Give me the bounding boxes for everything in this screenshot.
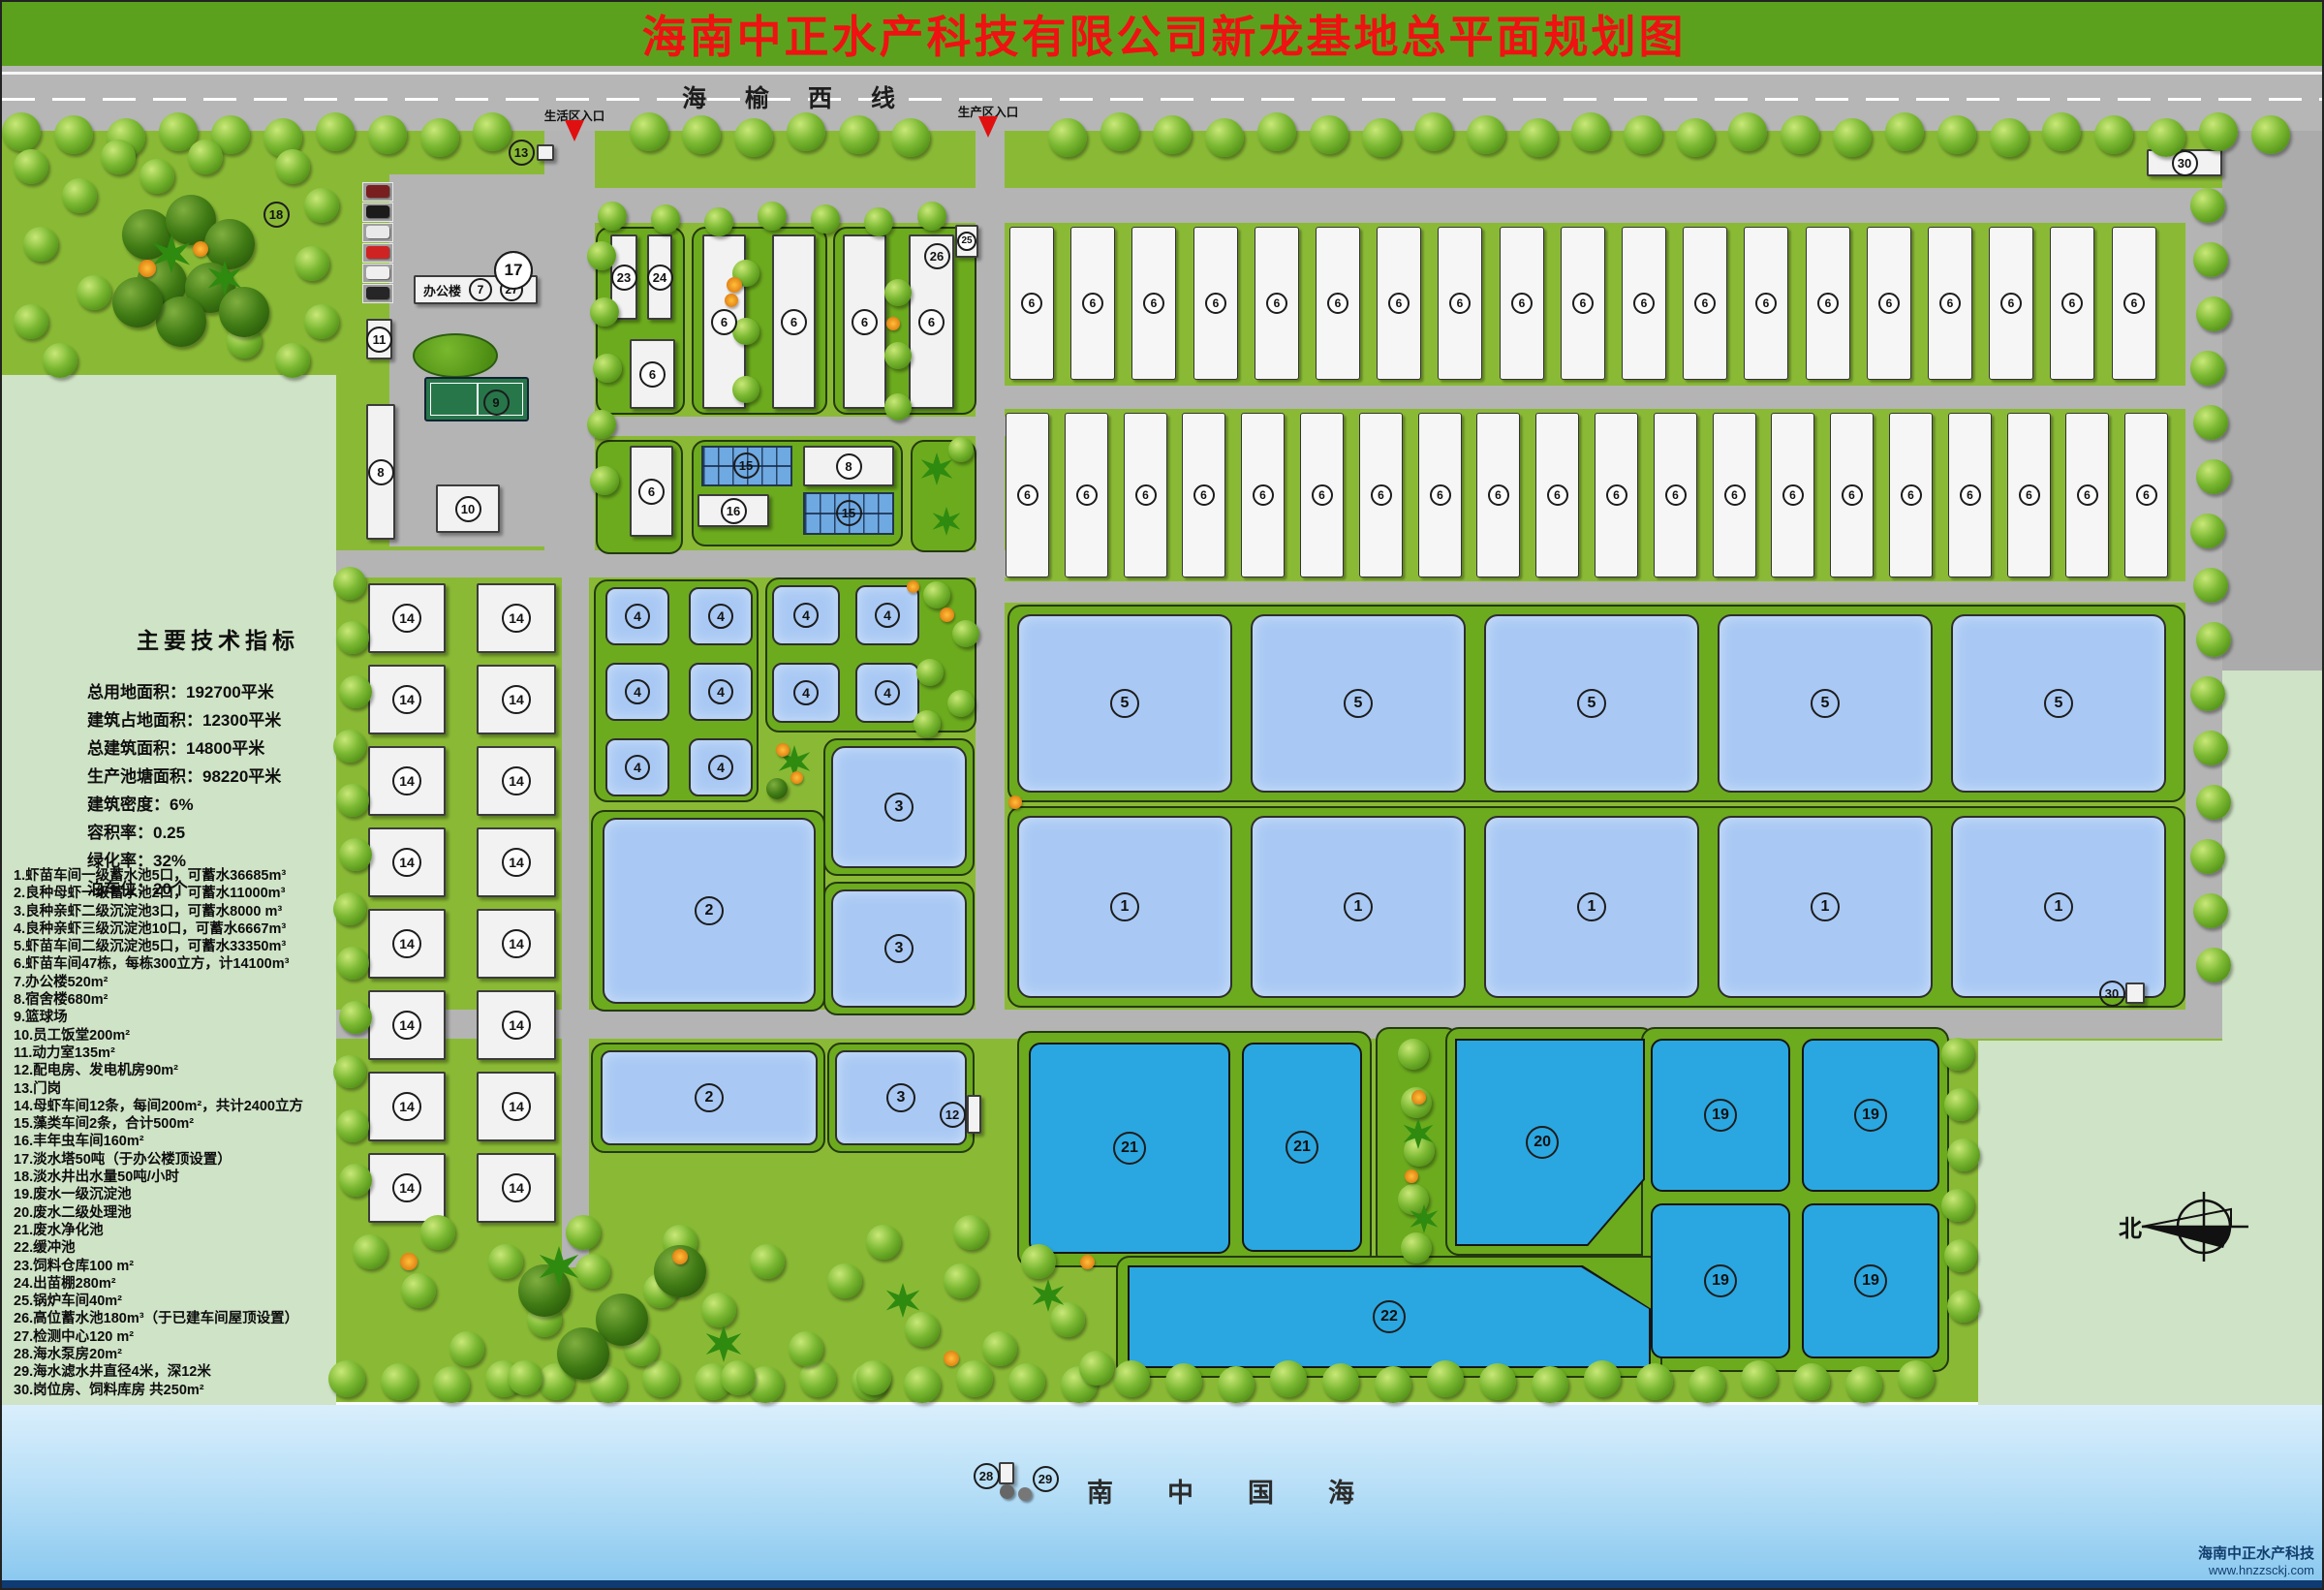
marker-6: 6: [1266, 293, 1287, 314]
tree-icon: [630, 112, 668, 151]
building: [2125, 982, 2145, 1004]
tree-icon: [2042, 112, 2081, 151]
marker-6: 6: [1021, 293, 1042, 314]
tree-icon: [891, 118, 930, 157]
flower-bush-icon: [725, 294, 738, 307]
marker-6: 6: [2000, 293, 2022, 314]
marker-14: 14: [392, 1173, 421, 1202]
marker-6: 6: [1572, 293, 1594, 314]
tree-icon: [2, 112, 41, 151]
tree-icon: [1153, 115, 1192, 154]
flower-bush-icon: [790, 771, 803, 784]
flower-bush-icon: [1405, 1169, 1418, 1183]
tree-icon: [2193, 242, 2228, 277]
tree-icon: [856, 1360, 891, 1395]
legend-item: 16.丰年虫车间160m²: [14, 1133, 335, 1150]
marker-6: 6: [1205, 293, 1226, 314]
tree-icon: [336, 621, 369, 654]
marker-6: 6: [1665, 484, 1687, 506]
tree-icon: [1519, 118, 1558, 157]
tree-icon: [1414, 112, 1453, 151]
tree-icon: [1833, 118, 1872, 157]
filter-well-icon: [1018, 1487, 1032, 1501]
tree-icon: [1937, 115, 1976, 154]
legend-item: 29.海水滤水井直径4米，深12米: [14, 1363, 335, 1381]
marker-4: 4: [793, 603, 819, 628]
tree-icon: [590, 297, 619, 327]
highway-center-line: [2, 98, 2324, 101]
tree-icon: [2094, 115, 2133, 154]
tree-icon: [917, 202, 946, 231]
marker-6: 6: [2123, 293, 2145, 314]
tree-icon: [2193, 405, 2228, 440]
marker-6: 6: [2136, 484, 2157, 506]
tree-icon: [914, 710, 941, 737]
marker-6: 6: [1449, 293, 1471, 314]
flower-bush-icon: [1080, 1255, 1095, 1269]
marker-6: 6: [1817, 293, 1839, 314]
tree-icon: [1571, 112, 1610, 151]
tree-icon: [339, 838, 372, 871]
tree-icon: [1947, 1290, 1980, 1323]
marker-6: 6: [1253, 484, 1274, 506]
tree-icon: [2193, 731, 2228, 765]
tree-icon: [1079, 1351, 1114, 1386]
tree-icon: [953, 1215, 988, 1250]
marker-14: 14: [392, 1092, 421, 1121]
marker-14: 14: [392, 1011, 421, 1040]
marker-8: 8: [368, 459, 394, 485]
tree-icon: [1375, 1366, 1411, 1403]
marker-26: 26: [924, 243, 950, 269]
legend-item: 27.检测中心120 m²: [14, 1328, 335, 1346]
flower-bush-icon: [193, 241, 208, 257]
tree-icon: [905, 1312, 940, 1347]
legend-item: 9.篮球场: [14, 1009, 335, 1026]
tree-icon: [508, 1360, 542, 1395]
tree-icon: [1048, 118, 1087, 157]
tree-icon: [1676, 118, 1715, 157]
tree-icon: [789, 1331, 823, 1366]
tree-icon: [904, 1366, 941, 1403]
building: [967, 1095, 981, 1134]
tree-icon: [948, 437, 974, 462]
tree-icon: [1741, 1360, 1778, 1397]
tree-icon: [1100, 112, 1139, 151]
tree-icon: [721, 1360, 756, 1395]
tree-icon: [866, 1225, 901, 1260]
marker-24: 24: [647, 265, 673, 291]
marker-6: 6: [1388, 293, 1410, 314]
marker-17: 17: [494, 251, 533, 290]
marker-21: 21: [1286, 1131, 1318, 1164]
flower-bush-icon: [727, 277, 742, 293]
tree-icon: [112, 277, 163, 327]
marker-5: 5: [1577, 689, 1606, 718]
marker-6: 6: [1193, 484, 1215, 506]
tree-icon: [575, 1254, 610, 1289]
tree-icon: [557, 1327, 609, 1380]
marker-19: 19: [1704, 1099, 1737, 1132]
tree-icon: [701, 1293, 736, 1327]
tree-icon: [1008, 1363, 1045, 1400]
marker-6: 6: [1901, 484, 1922, 506]
highway-name: 海榆西线: [682, 79, 934, 114]
marker-6: 6: [1547, 484, 1568, 506]
legend-item: 13.门岗: [14, 1080, 335, 1098]
tree-icon: [884, 342, 912, 369]
marker-5: 5: [1811, 689, 1840, 718]
page-title: 海南中正水产科技有限公司新龙基地总平面规划图: [642, 2, 1687, 66]
tree-icon: [1113, 1360, 1150, 1397]
tree-icon: [1885, 112, 1924, 151]
legend-item: 17.淡水塔50吨（于办公楼顶设置）: [14, 1151, 335, 1169]
tree-icon: [294, 246, 329, 281]
marker-6: 6: [918, 309, 945, 335]
marker-14: 14: [502, 1173, 531, 1202]
legend-item: 14.母虾车间12条，每间200m²，共计2400立方: [14, 1098, 335, 1115]
marker-1: 1: [1344, 892, 1373, 921]
tree-icon: [587, 410, 616, 439]
tree-icon: [275, 149, 310, 184]
tree-icon: [333, 1055, 366, 1088]
flower-bush-icon: [1411, 1090, 1426, 1105]
marker-14: 14: [392, 604, 421, 633]
marker-4: 4: [875, 603, 900, 628]
marker-20: 20: [1526, 1126, 1559, 1159]
tree-icon: [642, 1360, 679, 1397]
compass: 北: [2119, 1186, 2254, 1269]
marker-19: 19: [1704, 1264, 1737, 1297]
marker-6: 6: [1782, 484, 1804, 506]
legend-item: 26.高位蓄水池180m³（于已建车间屋顶设置）: [14, 1310, 335, 1327]
marker-14: 14: [502, 604, 531, 633]
marker-6: 6: [1143, 293, 1164, 314]
marker-1: 1: [2044, 892, 2073, 921]
legend-list: 1.虾苗车间一级蓄水池5口，可蓄水36685m³2.良种母虾一级蓄水池2口，可蓄…: [14, 867, 335, 1399]
legend-item: 15.藻类车间2条，合计500m²: [14, 1115, 335, 1133]
filter-well-icon: [1000, 1484, 1014, 1499]
tree-icon: [734, 118, 773, 157]
tree-icon: [923, 581, 950, 608]
marker-2: 2: [695, 896, 724, 925]
tree-icon: [1584, 1360, 1621, 1397]
tree-icon: [473, 112, 511, 151]
legend-item: 1.虾苗车间一级蓄水池5口，可蓄水36685m³: [14, 867, 335, 885]
flower-bush-icon: [944, 1351, 959, 1366]
marker-21: 21: [1113, 1132, 1146, 1165]
tree-icon: [139, 159, 174, 194]
tree-icon: [420, 1215, 455, 1250]
tree-icon: [77, 275, 111, 310]
marker-6: 6: [2061, 293, 2083, 314]
site-plan-drawing: 南中国海 海南中正水产科技 www.hnzzsckj.com 666666666…: [0, 0, 2324, 1590]
marker-5: 5: [2044, 689, 2073, 718]
marker-4: 4: [625, 755, 650, 780]
seawater-pump-house: [999, 1462, 1014, 1484]
tree-icon: [449, 1331, 484, 1366]
marker-30: 30: [2172, 150, 2198, 176]
tree-icon: [2193, 893, 2228, 928]
tree-icon: [333, 892, 366, 925]
legend-item: 30.岗位房、饲料库房 共250m²: [14, 1382, 335, 1399]
tree-icon: [2190, 676, 2225, 711]
tree-icon: [2199, 112, 2238, 151]
tree-icon: [433, 1366, 470, 1403]
car-icon: [366, 266, 389, 279]
indicator-line: 生产池塘面积：98220平米: [87, 763, 349, 791]
tree-icon: [333, 567, 366, 600]
tree-icon: [1532, 1366, 1568, 1403]
tree-icon: [1990, 118, 2029, 157]
marker-19: 19: [1854, 1099, 1887, 1132]
tree-icon: [766, 778, 788, 799]
marker-6: 6: [1430, 484, 1451, 506]
marker-19: 19: [1854, 1264, 1887, 1297]
tree-icon: [593, 354, 622, 383]
tree-icon: [732, 376, 759, 403]
tree-icon: [2196, 622, 2231, 657]
court-line: [477, 383, 479, 416]
tree-icon: [368, 115, 407, 154]
tree-icon: [590, 466, 619, 495]
marker-15: 15: [836, 500, 862, 526]
flower-bush-icon: [672, 1249, 688, 1264]
road: [998, 581, 2222, 603]
tree-icon: [188, 140, 223, 174]
tree-icon: [1944, 1239, 1977, 1272]
flower-bush-icon: [139, 260, 156, 277]
entrance-arrow-icon: [565, 120, 584, 141]
compass-north-label: 北: [2119, 1209, 2142, 1243]
indicator-line: 总用地面积：192700平米: [87, 678, 349, 706]
indicator-line: 建筑占地面积：12300平米: [87, 706, 349, 734]
tree-icon: [982, 1331, 1017, 1366]
tree-icon: [275, 343, 310, 378]
tree-icon: [651, 204, 680, 234]
tree-icon: [1793, 1363, 1830, 1400]
flower-bush-icon: [907, 580, 919, 593]
indicator-line: 总建筑面积：14800平米: [87, 734, 349, 763]
legend-item: 19.废水一级沉淀池: [14, 1186, 335, 1203]
map-canvas: 6666666666666666666666666666666666666664…: [2, 2, 2324, 1590]
tree-icon: [1898, 1360, 1935, 1397]
marker-6: 6: [1327, 293, 1348, 314]
marker-1: 1: [1110, 892, 1139, 921]
tree-icon: [598, 202, 627, 231]
flower-bush-icon: [886, 317, 900, 330]
tree-icon: [1947, 1138, 1980, 1171]
marker-6: 6: [1082, 293, 1103, 314]
marker-3: 3: [884, 793, 914, 822]
highway-edge-line: [2, 72, 2324, 75]
tree-icon: [758, 202, 787, 231]
tree-icon: [14, 149, 48, 184]
marker-6: 6: [1371, 484, 1392, 506]
road: [992, 386, 2222, 409]
tree-icon: [2190, 351, 2225, 386]
legend-item: 7.办公楼520m²: [14, 974, 335, 991]
marker-6: 6: [1878, 293, 1900, 314]
legend-item: 22.缓冲池: [14, 1239, 335, 1257]
marker-28: 28: [974, 1463, 1000, 1489]
marker-4: 4: [625, 679, 650, 704]
indicators-title: 主要技术指标: [87, 622, 349, 655]
marker-14: 14: [392, 848, 421, 877]
tree-icon: [827, 1263, 862, 1298]
marker-14: 14: [502, 848, 531, 877]
legend-item: 24.出苗棚280m²: [14, 1275, 335, 1293]
tree-icon: [339, 675, 372, 708]
marker-4: 4: [875, 680, 900, 705]
marker-4: 4: [793, 680, 819, 705]
tree-icon: [101, 140, 136, 174]
tree-icon: [43, 343, 77, 378]
tree-icon: [952, 620, 979, 647]
marker-6: 6: [781, 309, 807, 335]
tree-icon: [2196, 296, 2231, 331]
marker-14: 14: [392, 685, 421, 714]
car-icon: [366, 287, 389, 299]
tree-icon: [1205, 118, 1244, 157]
marker-6: 6: [1606, 484, 1627, 506]
tree-icon: [884, 279, 912, 306]
marker-12: 12: [940, 1102, 966, 1128]
legend-item: 12.配电房、发电机房90m²: [14, 1062, 335, 1079]
marker-6: 6: [1842, 484, 1863, 506]
indicator-line: 建筑密度：6%: [87, 791, 349, 819]
marker-9: 9: [483, 390, 510, 416]
marker-6: 6: [1511, 293, 1533, 314]
marker-14: 14: [392, 766, 421, 795]
tree-icon: [420, 118, 459, 157]
flower-bush-icon: [1008, 795, 1022, 809]
tree-icon: [2190, 188, 2225, 223]
tree-icon: [1427, 1360, 1464, 1397]
building: [537, 144, 554, 161]
title-bar: 海南中正水产科技有限公司新龙基地总平面规划图: [2, 2, 2324, 66]
marker-6: 6: [2019, 484, 2040, 506]
legend-item: 8.宿舍楼680m²: [14, 991, 335, 1009]
marker-14: 14: [502, 929, 531, 958]
marker-14: 14: [502, 1011, 531, 1040]
tree-icon: [704, 207, 733, 236]
marker-4: 4: [625, 604, 650, 629]
marker-22: 22: [1373, 1300, 1406, 1333]
tree-icon: [1021, 1244, 1056, 1279]
tree-icon: [864, 207, 893, 236]
tree-icon: [750, 1244, 785, 1279]
marker-6: 6: [1017, 484, 1038, 506]
marker-7: 7: [469, 278, 492, 301]
tree-icon: [353, 1234, 387, 1269]
flower-bush-icon: [776, 743, 790, 757]
basketball-court: [424, 377, 529, 421]
tree-icon: [566, 1215, 601, 1250]
tree-icon: [488, 1244, 523, 1279]
tree-icon: [1165, 1363, 1202, 1400]
tree-icon: [1689, 1366, 1725, 1403]
tree-icon: [2190, 514, 2225, 548]
tree-icon: [381, 1363, 418, 1400]
tree-icon: [328, 1360, 365, 1397]
tree-icon: [944, 1263, 978, 1298]
tree-icon: [811, 204, 840, 234]
tree-icon: [336, 1109, 369, 1142]
indicators-panel: 主要技术指标 总用地面积：192700平米建筑占地面积：12300平米总建筑面积…: [87, 622, 349, 903]
tree-icon: [1050, 1302, 1085, 1337]
tree-icon: [304, 188, 339, 223]
tree-icon: [316, 112, 355, 151]
tree-icon: [587, 241, 616, 270]
tree-icon: [2196, 948, 2231, 982]
marker-14: 14: [502, 685, 531, 714]
marker-6: 6: [1755, 293, 1777, 314]
marker-18: 18: [263, 202, 290, 228]
tree-icon: [1624, 115, 1662, 154]
tree-icon: [2196, 459, 2231, 494]
tree-icon: [1944, 1088, 1977, 1121]
tree-icon: [1479, 1363, 1516, 1400]
marker-6: 6: [1633, 293, 1655, 314]
tree-icon: [787, 112, 825, 151]
tree-icon: [54, 115, 93, 154]
marker-6: 6: [1939, 293, 1961, 314]
tree-icon: [1218, 1366, 1255, 1403]
legend-item: 20.废水二级处理池: [14, 1204, 335, 1222]
tree-icon: [333, 730, 366, 763]
flower-bush-icon: [400, 1253, 418, 1270]
marker-6: 6: [1488, 484, 1509, 506]
tree-icon: [2251, 115, 2290, 154]
tree-icon: [956, 1360, 993, 1397]
tree-icon: [2196, 785, 2231, 820]
tree-icon: [1728, 112, 1767, 151]
marker-6: 6: [1724, 484, 1746, 506]
tree-icon: [1781, 115, 1819, 154]
tree-icon: [219, 287, 269, 337]
tree-icon: [1270, 1360, 1307, 1397]
tree-icon: [1322, 1363, 1359, 1400]
tree-icon: [884, 393, 912, 421]
tree-icon: [1362, 118, 1401, 157]
marker-14: 14: [502, 1092, 531, 1121]
tree-icon: [339, 1001, 372, 1034]
marker-5: 5: [1344, 689, 1373, 718]
tree-icon: [1310, 115, 1348, 154]
tree-icon: [14, 304, 48, 339]
marker-4: 4: [708, 755, 733, 780]
indicator-line: 容积率：0.25: [87, 819, 349, 847]
legend-item: 18.淡水井出水量50吨/小时: [14, 1169, 335, 1186]
legend-item: 3.良种亲虾二级沉淀池3口，可蓄水8000 m³: [14, 903, 335, 920]
tree-icon: [1401, 1232, 1432, 1263]
marker-11: 11: [366, 327, 392, 353]
marker-3: 3: [886, 1083, 915, 1112]
marker-29: 29: [1033, 1466, 1059, 1492]
marker-15: 15: [733, 452, 759, 479]
tree-icon: [839, 115, 878, 154]
tree-icon: [1257, 112, 1296, 151]
tree-icon: [336, 784, 369, 817]
marker-30: 30: [2099, 981, 2125, 1007]
tree-icon: [336, 947, 369, 980]
car-icon: [366, 226, 389, 238]
legend-item: 23.饲料仓库100 m²: [14, 1258, 335, 1275]
office-label: 办公楼: [423, 281, 461, 299]
legend-item: 10.员工饭堂200m²: [14, 1027, 335, 1044]
marker-6: 6: [711, 309, 737, 335]
